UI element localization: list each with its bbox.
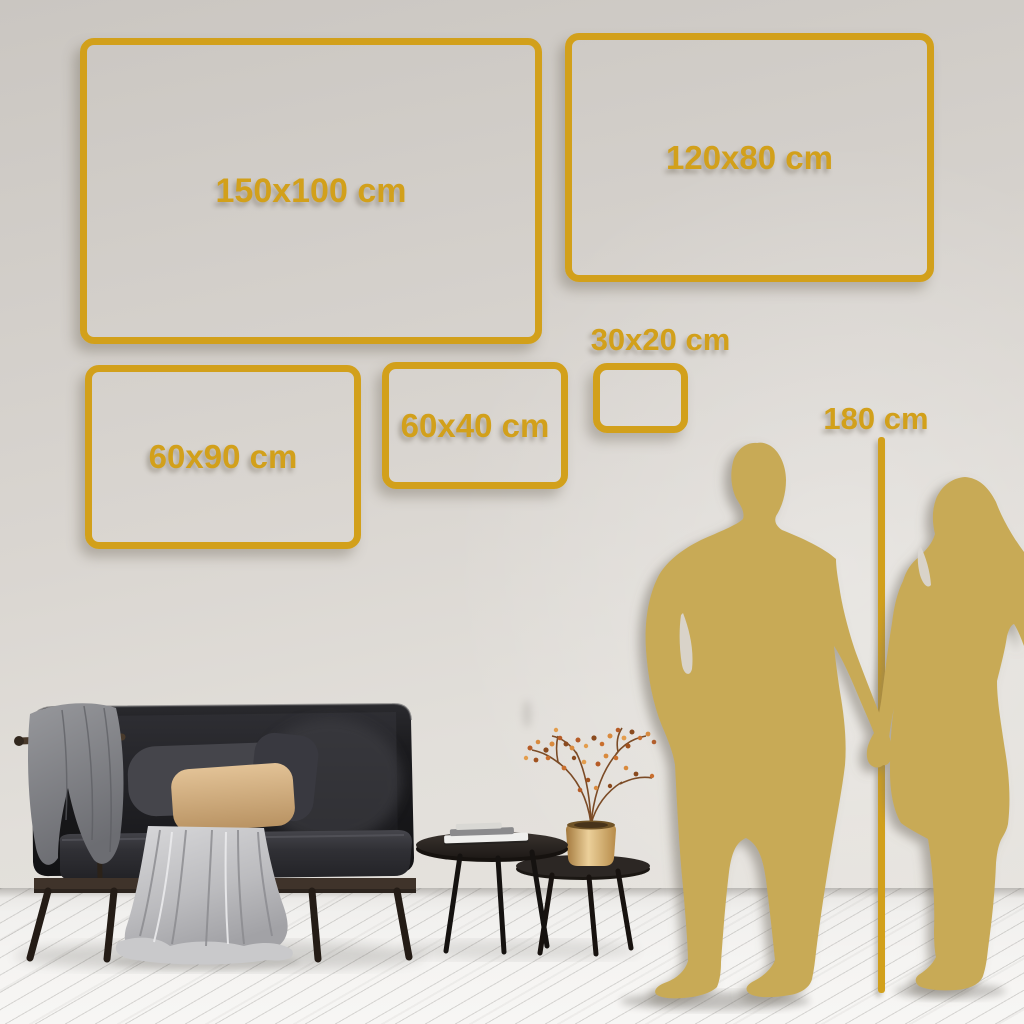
size-label-120x80: 120x80 cm bbox=[666, 139, 833, 177]
size-label-30x20: 30x20 cm bbox=[588, 322, 733, 358]
floor bbox=[0, 888, 1024, 1024]
size-frame-60x90: 60x90 cm bbox=[85, 365, 361, 549]
size-frame-30x20 bbox=[593, 363, 688, 433]
size-frame-150x100: 150x100 cm bbox=[80, 38, 542, 344]
size-frame-60x40: 60x40 cm bbox=[382, 362, 568, 489]
size-guide-mockup: 150x100 cm 120x80 cm 60x90 cm 60x40 cm 3… bbox=[0, 0, 1024, 1024]
size-label-60x90: 60x90 cm bbox=[149, 438, 298, 476]
size-label-60x40: 60x40 cm bbox=[401, 407, 550, 445]
height-reference-label: 180 cm bbox=[818, 401, 934, 437]
height-reference-line bbox=[878, 437, 885, 993]
size-frame-120x80: 120x80 cm bbox=[565, 33, 934, 282]
size-label-150x100: 150x100 cm bbox=[216, 172, 407, 211]
wall-smudge bbox=[523, 700, 531, 728]
